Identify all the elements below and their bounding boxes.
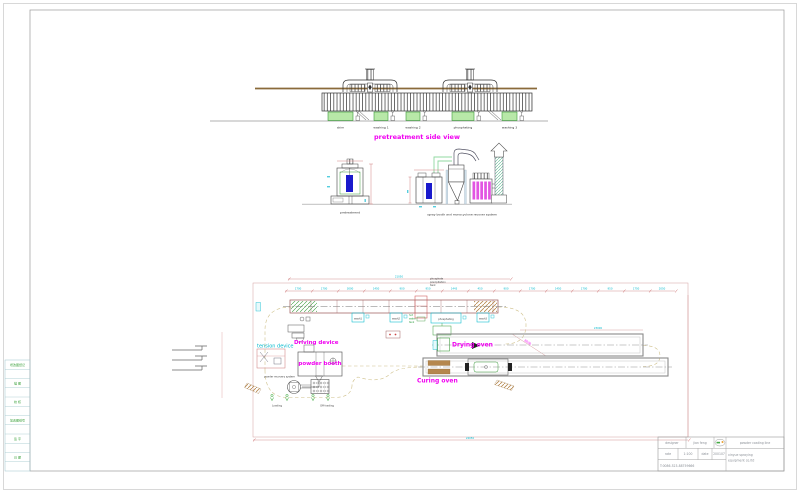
date-value: 200107 [713,452,725,456]
dim-overall-top: 21050 [395,274,404,278]
company-name-line2: equipment co.ltd [728,459,754,463]
section-label: spray booth and monocyclone recover syst… [427,213,497,217]
rate-label: rate [665,452,671,456]
pretreatment-cross-section: pretreatment [327,159,373,215]
tank-washing2 [406,111,427,121]
workpiece [346,175,353,192]
plan-tank-label: wash3 [479,317,487,321]
ramp-hatch [495,380,515,391]
cyclone-duct [454,149,479,165]
dim-overall-bottom: 24050 [466,436,475,440]
oven-fan-unit [438,338,450,351]
section-arrow-icons [172,346,207,370]
plan-view: 21050 1700 1700 3000 1450 900 950 1443 4… [172,274,691,441]
dim-value: 900 [504,287,509,291]
phone-number: T:0086-523-88759666 [659,464,694,468]
note-line: phosphate [430,276,444,280]
exhaust-fan-icon [443,69,497,92]
dim-value: 1750 [633,287,640,291]
section-label: pretreatment [340,211,361,215]
tank-phosphating [452,111,481,121]
note-line: precipitation [430,280,446,284]
tension-device: tension device [257,344,293,368]
cad-canvas: 增改图纸记 描 图 校 核 加改图纸号 签 字 日 期 [0,0,800,493]
date-label: date [702,452,709,456]
curing-oven-label: Curing oven [417,378,458,385]
revision-row-label: 校 核 [14,399,21,404]
workpiece [426,183,432,199]
dim-value: 1450 [555,287,562,291]
powder-booth: powder booth [298,345,342,387]
dim-value: 1700 [529,287,536,291]
note-line: tank [430,283,436,287]
drying-oven-label: Drying oven [452,342,493,349]
tank-washing1 [374,111,395,121]
revision-row-label: 增改图纸记 [10,362,25,367]
dim-value: 1700 [295,287,302,291]
spray-booth-section: spray booth and monocyclone recover syst… [407,143,507,217]
plan-tank-label: wash1 [354,317,362,321]
tank-label: washing 2 [405,126,420,130]
drying-oven: Drying oven [432,334,648,356]
page-frame [4,4,797,490]
revision-row-label: 签 字 [14,436,21,441]
exhaust-stack [491,143,507,203]
driving-device: Driving device [288,325,339,346]
powder-recovery-label: powder recovery system [264,375,295,379]
cross-sections: pretreatment [302,143,512,217]
curing-oven: Curing oven [417,358,672,385]
tension-device-label: tension device [257,344,293,350]
dim-value: 1450 [373,287,380,291]
tank-label: washing 1 [373,126,388,130]
filter-unit [470,173,492,203]
dim-value: 950 [608,287,613,291]
pretreatment-side-view: skim washing 1 washing 2 phosphating was… [210,69,548,141]
dim-value: 1700 [321,287,328,291]
plan-tanks: wash1 wash2 hot water tank phosphating w… [352,296,494,338]
revision-row-label: 日 期 [14,455,21,460]
title-block: designer jian feng powder coating line r… [658,437,784,471]
hot-tank-note: tank [409,321,415,324]
loading-label: Loading [272,404,282,408]
burner-bar [428,369,450,374]
dim-value: 1443 [451,287,458,291]
burner-bar [428,361,450,366]
revision-strip: 增改图纸记 描 图 校 核 加改图纸号 签 字 日 期 [5,360,30,471]
tank-washing3 [502,111,524,121]
designer-label: designer [665,441,679,445]
tank-label: phosphating [454,126,473,130]
powder-booth-label: powder booth [298,361,341,367]
company-name-line1: xinyue spraying [728,453,753,457]
revision-row-label: 描 图 [14,381,21,386]
plan-tank-label: wash2 [392,317,400,321]
revision-row-label: 加改图纸号 [10,418,25,423]
dim-value: 3000 [347,287,354,291]
tank-label: washing 3 [502,126,517,130]
dim-value: 2050 [659,287,666,291]
exhaust-arrow-icon [491,143,507,157]
offloading-label: Off-loading [320,404,334,408]
dim-value: 900 [400,287,405,291]
precipitation-tank-note: phosphate precipitation tank [430,276,446,287]
tunnel-body [322,93,532,111]
driving-device-label: Driving device [294,340,339,346]
plan-border [253,283,688,437]
tank-label: skim [337,126,344,130]
rate-value: 1:100 [684,452,693,456]
plan-tunnel [256,300,508,321]
dim-value: 1700 [581,287,588,291]
side-view-title: pretreatment side view [374,133,460,141]
exhaust-fan-icon [343,69,397,92]
tank-skim [328,111,360,121]
drawing-sheet: 增改图纸记 描 图 校 核 加改图纸号 签 字 日 期 [0,0,800,493]
plan-tank-label: phosphating [438,317,454,321]
cyclone [446,165,466,204]
dim-value: 450 [478,287,483,291]
company-logo-icon [715,439,725,446]
designer-value: jian feng [692,441,707,445]
dim-oven: 23000 [594,326,603,330]
product-name: powder coating line [740,441,771,445]
